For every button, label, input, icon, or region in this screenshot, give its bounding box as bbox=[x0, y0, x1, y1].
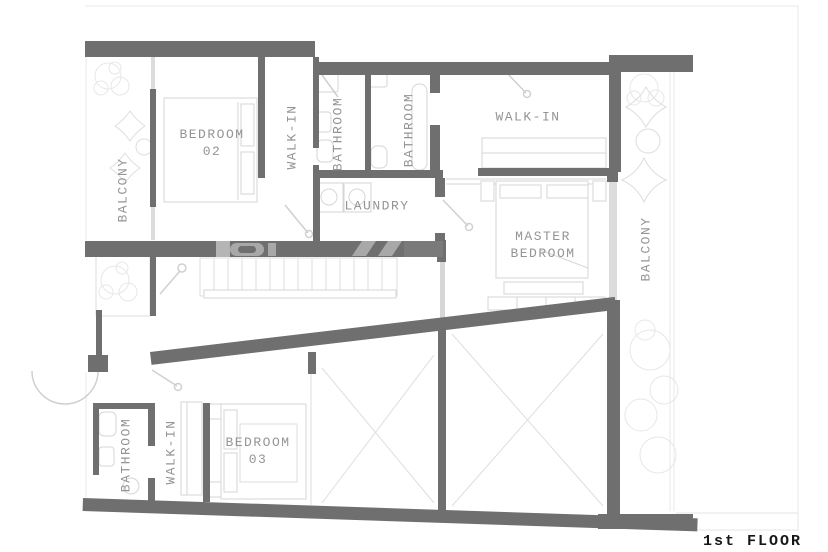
door-swings bbox=[32, 70, 531, 404]
lower-walkin-wardrobe bbox=[181, 402, 202, 495]
room-label-balcony-left: BALCONY bbox=[116, 157, 133, 222]
room-label-line: 02 bbox=[179, 144, 244, 161]
room-label-walk-in-top: WALK-IN bbox=[285, 104, 302, 169]
room-label-bathroom-lower: BATHROOM bbox=[119, 418, 136, 492]
room-label-balcony-right: BALCONY bbox=[639, 216, 656, 281]
balcony-right-decor bbox=[622, 72, 678, 511]
room-label-bedroom-03: BEDROOM 03 bbox=[225, 435, 290, 469]
courtyard-planter bbox=[96, 256, 150, 316]
room-label-line: BEDROOM bbox=[225, 435, 290, 452]
void-cross-marks bbox=[311, 334, 603, 506]
room-label-bathroom-top-1: BATHROOM bbox=[331, 97, 348, 171]
floor-title: 1st FLOOR bbox=[703, 533, 802, 550]
room-label-walk-in-lower: WALK-IN bbox=[164, 419, 181, 484]
room-label-line: BEDROOM bbox=[179, 127, 244, 144]
room-label-line: BEDROOM bbox=[510, 246, 575, 263]
room-label-master-bedroom: MASTER BEDROOM bbox=[510, 229, 575, 263]
room-label-laundry: LAUNDRY bbox=[344, 199, 409, 216]
room-label-line: 03 bbox=[225, 452, 290, 469]
room-label-bedroom-02: BEDROOM 02 bbox=[179, 127, 244, 161]
room-label-bathroom-top-2: BATHROOM bbox=[402, 93, 419, 167]
stairs bbox=[160, 258, 397, 298]
room-label-line: MASTER bbox=[510, 229, 575, 246]
floor-plan: BALCONY BEDROOM 02 WALK-IN BATHROOM BATH… bbox=[0, 0, 828, 552]
room-label-walk-in-master: WALK-IN bbox=[495, 110, 560, 127]
